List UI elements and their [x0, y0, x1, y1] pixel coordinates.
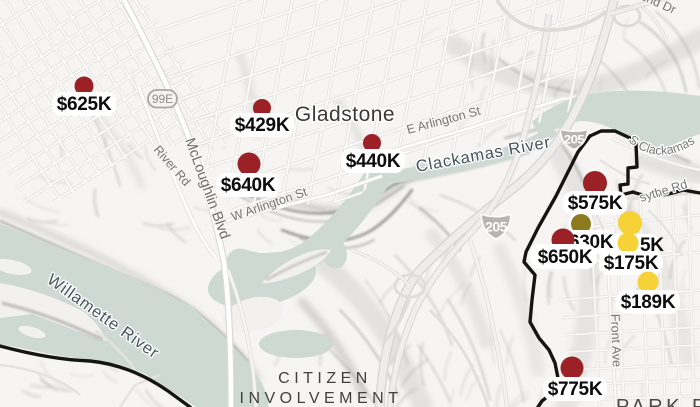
svg-text:Gladstone: Gladstone: [295, 103, 395, 126]
svg-text:PARK PL: PARK PL: [616, 396, 700, 407]
svg-text:$625K: $625K: [57, 94, 112, 115]
svg-text:Front Ave: Front Ave: [608, 314, 624, 368]
svg-text:CITIZEN: CITIZEN: [278, 370, 372, 387]
svg-text:$575K: $575K: [568, 193, 623, 214]
svg-text:$775K: $775K: [548, 379, 603, 400]
svg-text:$650K: $650K: [538, 247, 593, 268]
svg-text:$440K: $440K: [346, 151, 401, 172]
svg-text:99E: 99E: [152, 92, 173, 106]
svg-text:205: 205: [564, 133, 585, 146]
svg-text:$189K: $189K: [621, 292, 676, 313]
svg-text:$175K: $175K: [604, 253, 659, 274]
svg-text:$640K: $640K: [221, 175, 276, 196]
svg-text:205: 205: [485, 219, 508, 235]
svg-text:INVOLVEMENT: INVOLVEMENT: [240, 390, 403, 407]
svg-text:$429K: $429K: [235, 115, 290, 136]
